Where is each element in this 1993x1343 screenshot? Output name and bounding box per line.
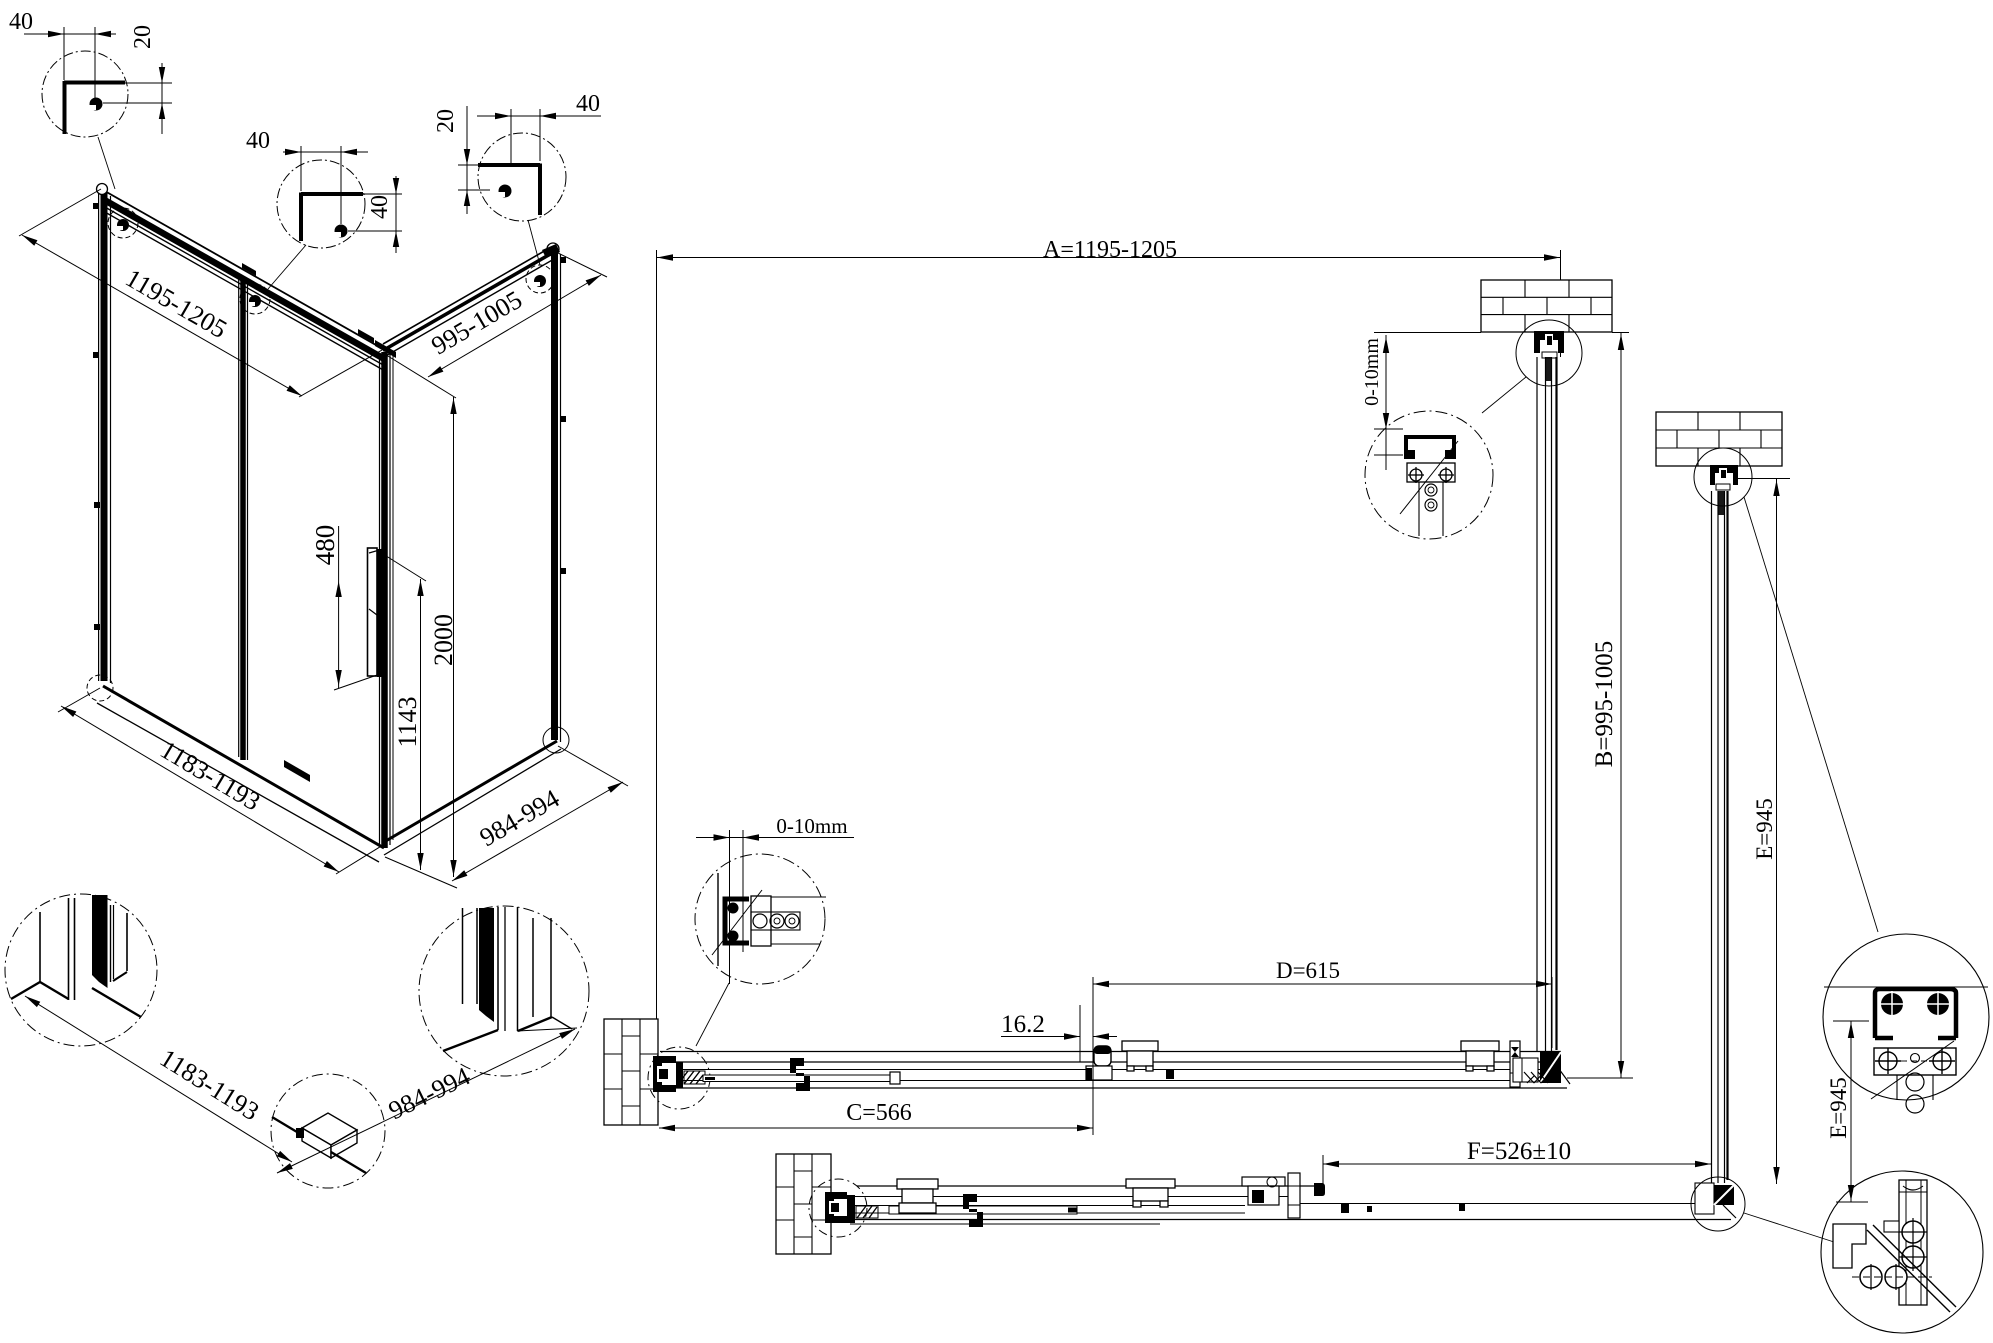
svg-text:B=995-1005: B=995-1005 [1591, 641, 1618, 768]
svg-text:A=1195-1205: A=1195-1205 [1043, 237, 1177, 263]
svg-text:E=945: E=945 [1826, 1077, 1851, 1139]
svg-text:20: 20 [130, 25, 156, 49]
svg-text:C=566: C=566 [846, 1100, 912, 1126]
svg-text:40: 40 [576, 91, 600, 117]
svg-text:480: 480 [310, 525, 340, 566]
svg-text:40: 40 [367, 195, 393, 219]
svg-text:16.2: 16.2 [1001, 1011, 1045, 1038]
svg-text:2000: 2000 [429, 614, 458, 666]
svg-text:20: 20 [433, 109, 459, 133]
svg-text:F=526±10: F=526±10 [1467, 1138, 1571, 1165]
svg-text:D=615: D=615 [1276, 958, 1340, 983]
svg-text:E=945: E=945 [1752, 798, 1777, 860]
svg-text:40: 40 [9, 9, 33, 35]
svg-text:0-10mm: 0-10mm [776, 814, 847, 838]
svg-text:0-10mm: 0-10mm [1361, 338, 1383, 406]
svg-text:40: 40 [246, 128, 270, 154]
svg-text:1143: 1143 [393, 696, 422, 747]
